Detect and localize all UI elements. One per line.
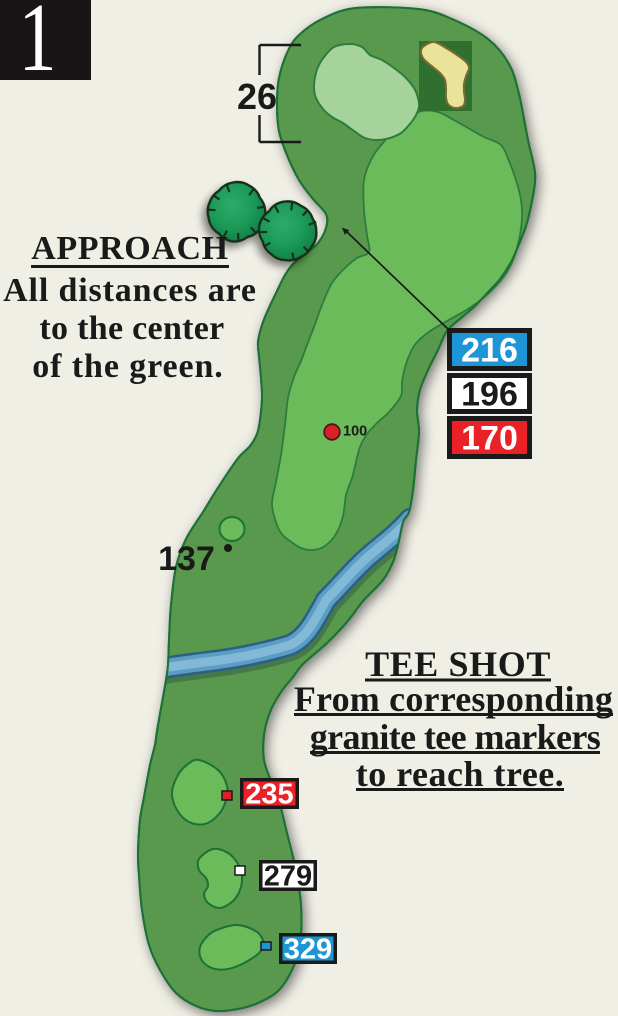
- svg-text:216: 216: [461, 331, 518, 369]
- svg-text:170: 170: [461, 419, 518, 457]
- svg-text:100: 100: [343, 423, 367, 439]
- svg-text:329: 329: [284, 934, 332, 966]
- svg-text:of the green.: of the green.: [32, 348, 223, 385]
- svg-text:26: 26: [237, 76, 277, 117]
- svg-text:to the center: to the center: [39, 310, 224, 347]
- svg-text:279: 279: [264, 861, 312, 893]
- svg-text:TEE SHOT: TEE SHOT: [365, 644, 551, 684]
- svg-text:137: 137: [158, 540, 215, 578]
- svg-text:All distances are: All distances are: [3, 272, 257, 309]
- svg-text:196: 196: [461, 375, 518, 413]
- svg-text:235: 235: [245, 779, 293, 811]
- svg-text:APPROACH: APPROACH: [31, 230, 228, 267]
- svg-text:1: 1: [18, 0, 56, 92]
